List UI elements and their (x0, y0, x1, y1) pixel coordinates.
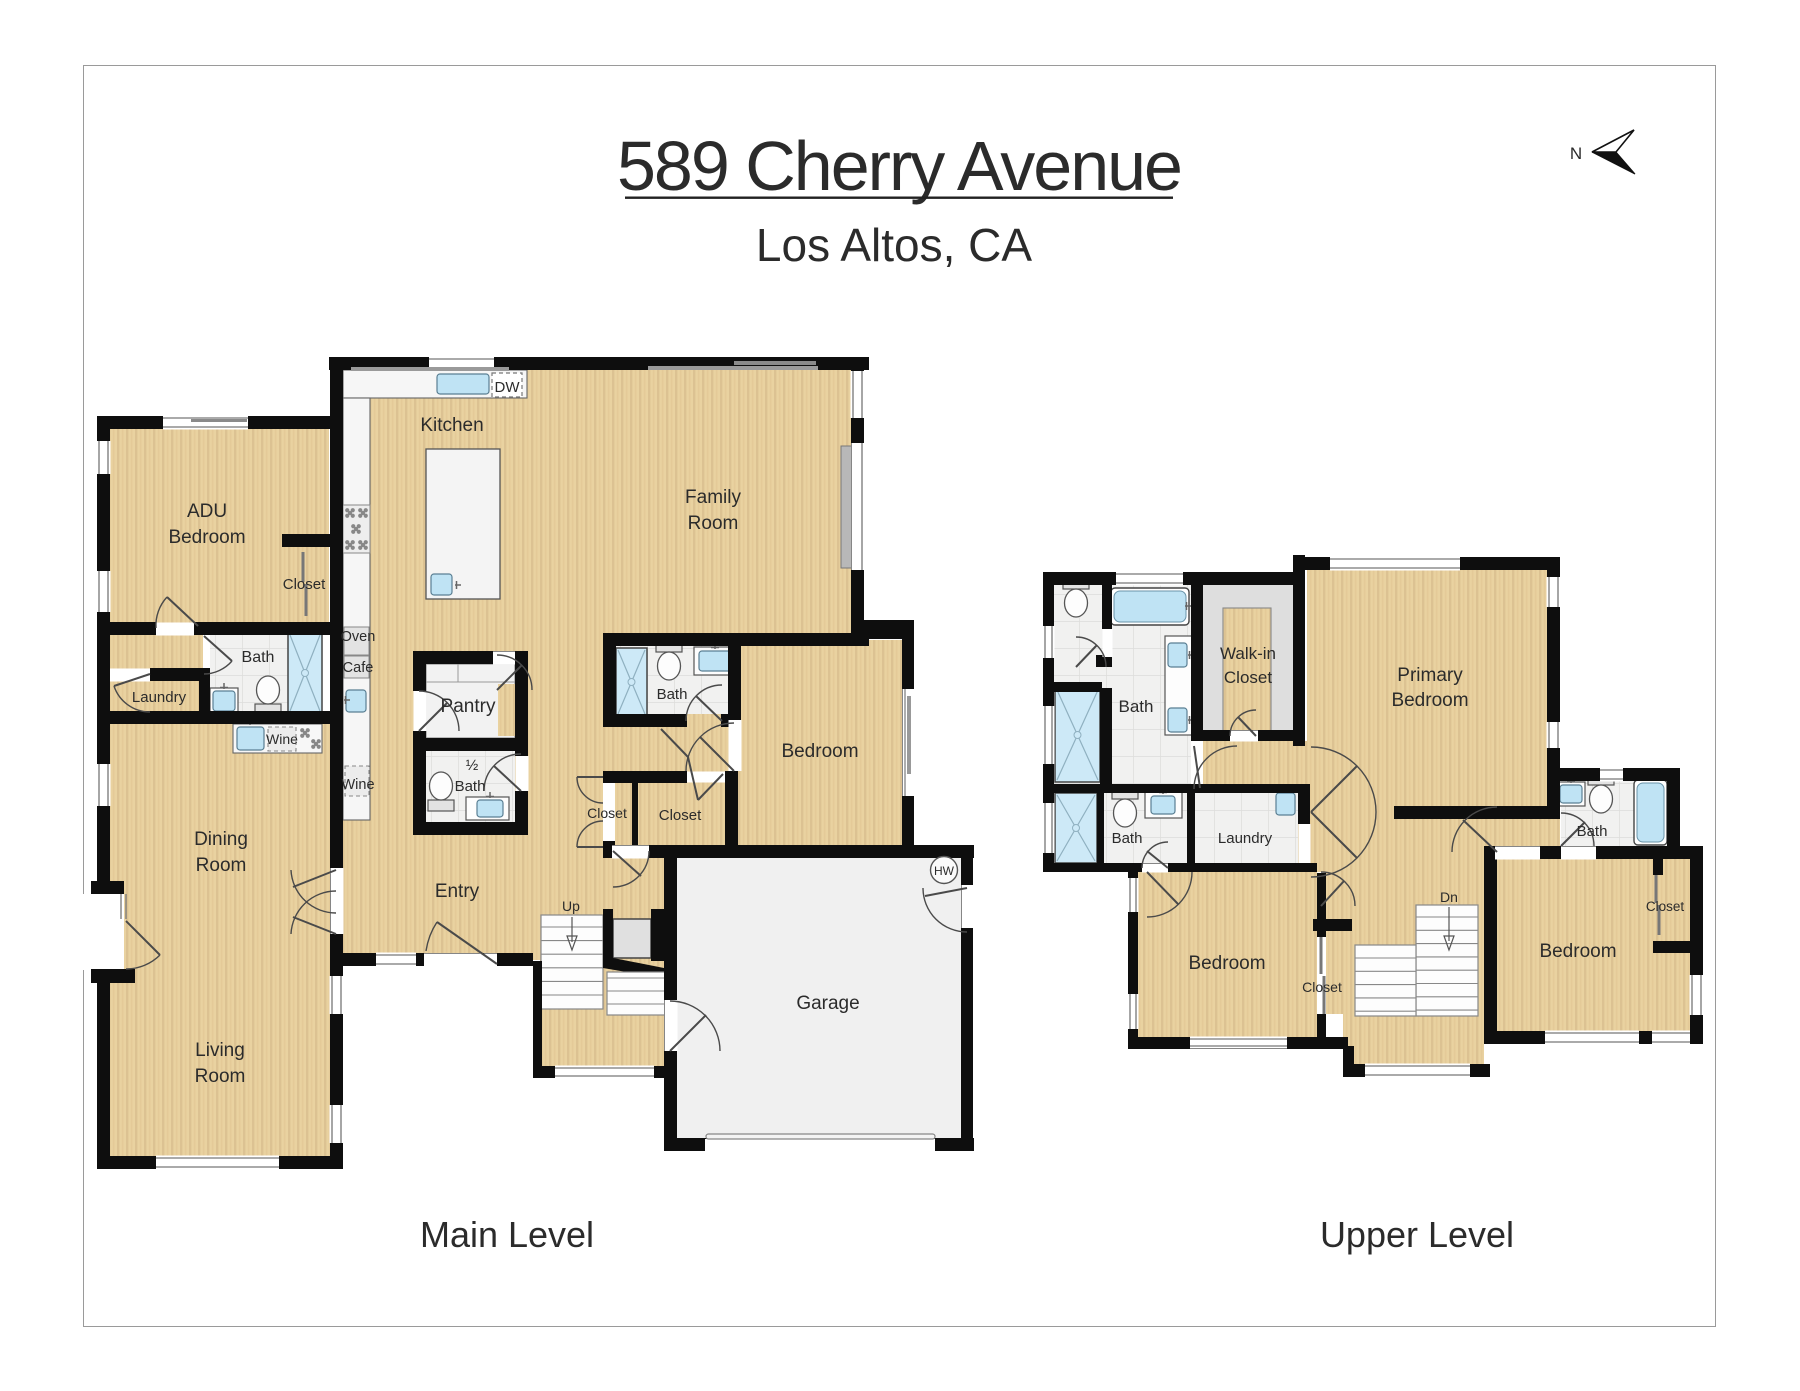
svg-text:Garage: Garage (796, 993, 859, 1014)
svg-text:Up: Up (562, 898, 580, 914)
svg-text:Bedroom: Bedroom (1188, 953, 1265, 974)
svg-text:Bedroom: Bedroom (1391, 690, 1468, 711)
svg-text:Bath: Bath (1577, 823, 1608, 840)
svg-text:Bath: Bath (455, 778, 486, 795)
svg-text:Room: Room (688, 513, 739, 534)
svg-text:Walk-in: Walk-in (1220, 644, 1276, 663)
svg-text:DW: DW (495, 379, 521, 396)
svg-text:Closet: Closet (1302, 979, 1342, 995)
svg-text:Kitchen: Kitchen (420, 415, 483, 436)
svg-text:Dn: Dn (1440, 889, 1458, 905)
svg-text:Los Altos, CA: Los Altos, CA (756, 219, 1032, 271)
svg-text:589 Cherry Avenue: 589 Cherry Avenue (617, 127, 1181, 205)
svg-text:Entry: Entry (435, 881, 480, 902)
svg-text:Cafe: Cafe (343, 660, 374, 676)
svg-text:Bath: Bath (1112, 830, 1143, 847)
svg-text:Primary: Primary (1397, 665, 1463, 686)
svg-text:Living: Living (195, 1040, 245, 1061)
svg-text:Bath: Bath (1119, 697, 1154, 716)
svg-text:Wine: Wine (266, 731, 298, 747)
svg-text:Main Level: Main Level (420, 1214, 594, 1255)
svg-text:Family: Family (685, 487, 741, 508)
svg-text:Bath: Bath (657, 686, 688, 703)
svg-text:Closet: Closet (283, 576, 326, 593)
svg-text:ADU: ADU (187, 501, 227, 522)
svg-text:Bedroom: Bedroom (168, 527, 245, 548)
svg-text:Closet: Closet (659, 807, 702, 824)
svg-text:Wine: Wine (341, 777, 374, 793)
svg-text:Room: Room (195, 1066, 246, 1087)
svg-text:Upper Level: Upper Level (1320, 1214, 1514, 1255)
svg-text:½: ½ (466, 757, 479, 774)
svg-text:Bath: Bath (242, 649, 275, 666)
svg-text:Laundry: Laundry (132, 689, 187, 706)
svg-text:Closet: Closet (1224, 668, 1272, 687)
svg-text:Laundry: Laundry (1218, 830, 1273, 847)
svg-text:Room: Room (196, 855, 247, 876)
svg-text:Oven: Oven (341, 629, 376, 645)
svg-text:Bedroom: Bedroom (781, 741, 858, 762)
svg-text:Dining: Dining (194, 829, 248, 850)
svg-text:Closet: Closet (587, 805, 627, 821)
svg-text:N: N (1570, 144, 1582, 163)
svg-text:Closet: Closet (1646, 899, 1685, 914)
svg-text:Pantry: Pantry (441, 696, 496, 717)
svg-text:Bedroom: Bedroom (1539, 941, 1616, 962)
svg-text:HW: HW (934, 864, 955, 878)
